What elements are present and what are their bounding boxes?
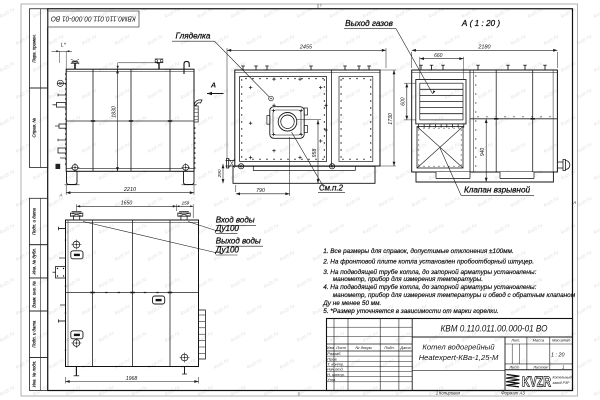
- svg-text:1 : 20: 1 : 20: [551, 352, 565, 358]
- svg-text:958: 958: [312, 149, 318, 158]
- svg-text:Копировал: Копировал: [439, 391, 461, 396]
- svg-text:А: А: [58, 193, 62, 198]
- svg-text:Heatexpert-КВа-1,25-М: Heatexpert-КВа-1,25-М: [419, 353, 499, 362]
- svg-text:манометр, прибор для измерения: манометр, прибор для измерения температу…: [333, 291, 576, 299]
- svg-text:790: 790: [256, 188, 265, 194]
- svg-text:1: 1: [562, 364, 564, 369]
- svg-text:А ( 1 : 20 ): А ( 1 : 20 ): [461, 19, 500, 28]
- svg-text:290: 290: [217, 169, 223, 178]
- svg-text:600: 600: [401, 97, 407, 106]
- svg-text:Котельный: Котельный: [553, 376, 572, 380]
- svg-text:KVZR: KVZR: [522, 374, 551, 391]
- svg-text:Дата: Дата: [399, 345, 411, 350]
- svg-text:1968: 1968: [126, 376, 138, 382]
- svg-text:1730: 1730: [388, 113, 394, 125]
- svg-text:См.п.2: См.п.2: [319, 184, 344, 193]
- svg-text:1. Все размеры для справок, д: 1. Все размеры для справок, допустимые о…: [323, 247, 514, 255]
- svg-text:Перв. примен.: Перв. примен.: [32, 34, 37, 63]
- svg-text:Подп.: Подп.: [384, 345, 394, 350]
- svg-text:2455: 2455: [299, 44, 313, 50]
- svg-text:Изм: Изм: [327, 345, 335, 350]
- svg-text:2180: 2180: [477, 44, 491, 50]
- svg-text:Гляделка: Гляделка: [176, 32, 211, 41]
- svg-text:2210: 2210: [123, 187, 137, 193]
- svg-text:№ докум.: № докум.: [355, 345, 372, 350]
- svg-text:А: А: [210, 81, 216, 90]
- svg-text:Справ. №: Справ. №: [32, 118, 37, 138]
- svg-text:Ду не менее 50 мм.: Ду не менее 50 мм.: [322, 300, 381, 307]
- svg-text:4. На подводящей трубе котла,: 4. На подводящей трубе котла, до запорно…: [323, 283, 536, 291]
- svg-text:Подп. и дата: Подп. и дата: [32, 207, 37, 235]
- svg-text:Котел водогрейный: Котел водогрейный: [422, 342, 495, 351]
- svg-text:Клапан взрывной: Клапан взрывной: [464, 186, 531, 195]
- svg-text:КВМ0.110.011.00.000-01 ВО: КВМ0.110.011.00.000-01 ВО: [50, 14, 135, 23]
- svg-text:Утв.: Утв.: [327, 377, 336, 382]
- svg-text:Лист: Лист: [335, 345, 347, 350]
- svg-text:Инв. № подл.: Инв. № подл.: [32, 361, 37, 388]
- svg-text:Листов: Листов: [532, 364, 547, 369]
- svg-text:5. *Размер уточняется в завис: 5. *Размер уточняется в зависимости от м…: [323, 308, 498, 315]
- svg-text:Инв. № дубл.: Инв. № дубл.: [32, 248, 37, 274]
- svg-text:Лист: Лист: [508, 364, 520, 369]
- svg-text:Лит.: Лит.: [510, 338, 520, 343]
- svg-text:Ду100: Ду100: [215, 224, 240, 233]
- svg-text:1650: 1650: [121, 201, 133, 207]
- svg-text:660: 660: [434, 53, 443, 59]
- svg-text:Взам. инв. №: Взам. инв. №: [32, 281, 37, 308]
- svg-text:1830: 1830: [111, 106, 117, 118]
- svg-text:Масштаб: Масштаб: [552, 338, 571, 343]
- svg-text:Формат А3: Формат А3: [501, 391, 525, 396]
- svg-text:завод РЗР: завод РЗР: [552, 381, 571, 385]
- svg-text:Выход воды: Выход воды: [216, 237, 261, 246]
- svg-text:3. На подводящей трубе котла,: 3. На подводящей трубе котла, до запорно…: [323, 268, 536, 276]
- svg-text:Ду100: Ду100: [215, 245, 240, 254]
- svg-text:Выход газов: Выход газов: [345, 19, 393, 28]
- svg-text:Подп. и дата: Подп. и дата: [32, 320, 37, 348]
- svg-text:манометр, прибор для измерения: манометр, прибор для измерения температу…: [333, 275, 483, 283]
- svg-text:Масса: Масса: [533, 338, 545, 343]
- svg-text:А: А: [572, 200, 576, 205]
- svg-text:940: 940: [480, 148, 486, 157]
- svg-text:159: 159: [182, 201, 190, 206]
- svg-text:2. На фронтовой плите котла у: 2. На фронтовой плите котла установлен п…: [322, 258, 534, 266]
- svg-text:КВМ 0.110.011.00.000-01 ВО: КВМ 0.110.011.00.000-01 ВО: [441, 323, 548, 333]
